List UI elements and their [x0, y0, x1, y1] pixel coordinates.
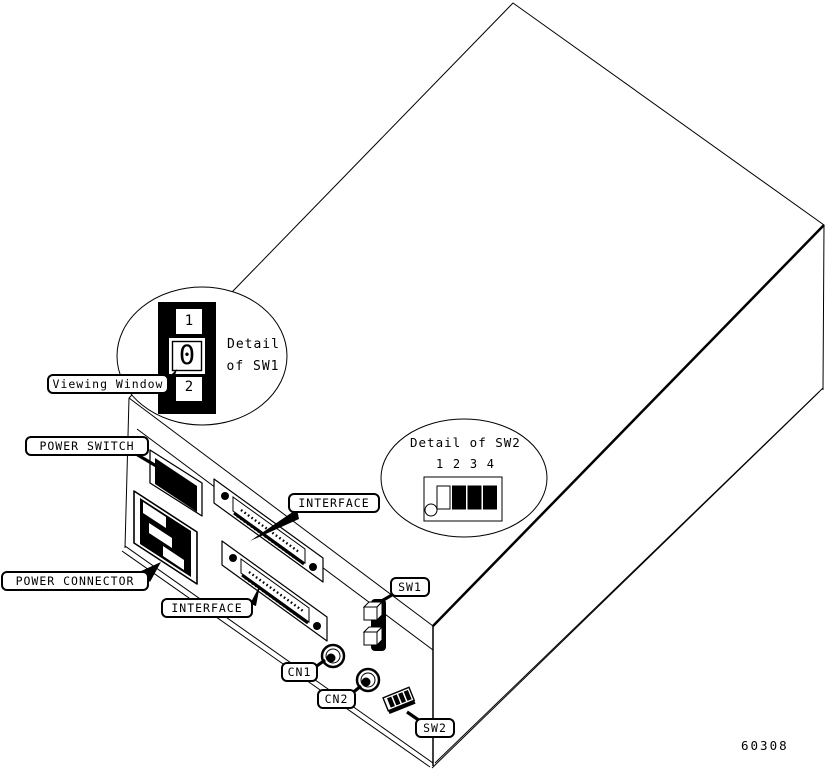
callout-power-connector: POWER CONNECTOR: [1, 571, 149, 591]
callout-sw2: SW2: [415, 718, 455, 738]
callout-power-switch: POWER SWITCH: [25, 436, 149, 456]
sw1-detail-title-line1: Detail: [227, 337, 279, 352]
callout-viewing-window: Viewing Window: [47, 374, 169, 394]
sw2-dip-2: [453, 486, 466, 509]
sw1-position-top-digit: 1: [176, 313, 202, 329]
figure-number: 60308: [741, 738, 789, 753]
cn1-connector-component: [322, 645, 344, 667]
callout-interface-upper: INTERFACE: [288, 493, 380, 513]
sw1-viewing-window-digit: 0: [169, 337, 205, 374]
sw2-number-3: 3: [470, 457, 477, 471]
figure-canvas: Viewing Window POWER SWITCH POWER CONNEC…: [0, 0, 825, 778]
callout-cn2: CN2: [317, 689, 356, 709]
sw1-position-bottom-digit: 2: [176, 379, 202, 395]
sw1-switch-component: [364, 599, 386, 651]
sw2-detail-pivot: [425, 504, 437, 516]
panel-left-edge: [125, 398, 129, 548]
sw2-detail-title: Detail of SW2: [410, 435, 520, 450]
sw1-detail-title-line2: of SW1: [222, 359, 284, 374]
callout-interface-lower: INTERFACE: [161, 598, 253, 618]
sw2-number-1: 1: [436, 457, 443, 471]
sw2-dip-3: [468, 486, 481, 509]
sw2-dip-4: [484, 486, 497, 509]
sw2-position-numbers: 1 2 3 4: [436, 457, 494, 471]
callout-sw1: SW1: [390, 577, 430, 597]
bottom-left-edge-a: [125, 546, 433, 763]
sw2-dip-1: [437, 486, 450, 509]
callout-cn1: CN1: [281, 662, 318, 682]
sw2-dip-component: [383, 687, 416, 714]
sw2-number-4: 4: [487, 457, 494, 471]
sw2-number-2: 2: [453, 457, 460, 471]
